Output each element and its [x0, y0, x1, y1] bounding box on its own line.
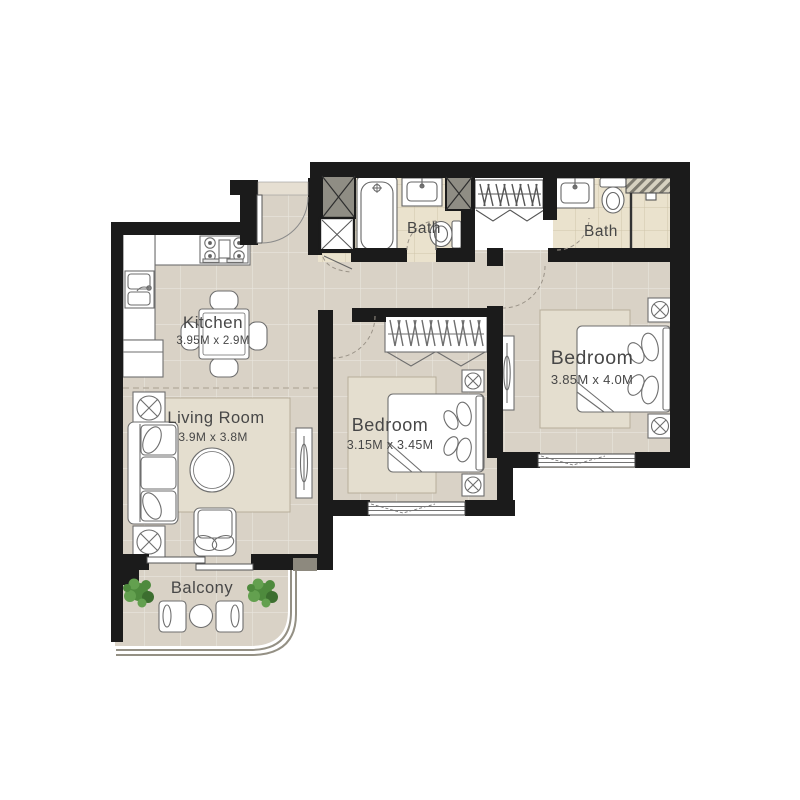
balcony-chair-icon [216, 601, 243, 632]
nightstand-icon [462, 370, 484, 392]
wall-bedroom-master-west-top [487, 248, 503, 266]
wall-bedroom-small-south-right [465, 500, 515, 516]
wall-bedroom-master-south-right [635, 452, 690, 468]
nightstand-icon [462, 474, 484, 496]
structural-block [293, 558, 317, 571]
armchair-icon [193, 508, 236, 556]
sofa-icon [128, 422, 178, 524]
wall-bedroom-master-west [487, 306, 503, 458]
bedroom-master-dimensions: 3.85M x 4.0M [551, 372, 633, 387]
wall-bedroom-master-south-left [497, 452, 540, 468]
shaft-icon [320, 218, 354, 253]
wall-bedroom-small-north-stub [352, 308, 386, 322]
fridge-icon [123, 340, 163, 377]
bedroom-master-label: Bedroom [551, 347, 634, 369]
bathtub-icon [357, 176, 397, 255]
bedroom-small-label: Bedroom [352, 415, 429, 435]
kitchen-label: Kitchen [183, 313, 243, 332]
wall-entry-west [240, 195, 258, 245]
window [538, 454, 635, 467]
bed-icon [577, 326, 671, 412]
wall-above-wardrobe [386, 308, 487, 317]
wall-living-east [318, 310, 333, 570]
column-icon [446, 177, 472, 210]
balcony-furniture [159, 601, 243, 632]
wall-bath1-south-a [351, 248, 407, 262]
nightstand-icon [648, 298, 672, 322]
balcony-label: Balcony [171, 579, 233, 597]
bedroom-small-furniture [385, 316, 487, 496]
tv-unit-icon [296, 428, 312, 498]
toilet-icon [600, 178, 626, 213]
wall-entry-left [230, 180, 258, 195]
side-table-lamp-icon [133, 526, 165, 558]
hall-closet-icon [475, 180, 544, 221]
column-icon [322, 176, 355, 218]
living-room-label: Living Room [167, 409, 264, 427]
washbasin-icon [402, 178, 442, 206]
kitchen-sink-icon [125, 271, 154, 308]
wall-top [310, 162, 690, 178]
living-room-dimensions: 3.9M x 3.8M [178, 430, 247, 444]
wall-bedroom-small-south-left [318, 500, 370, 516]
balcony-chair-icon [159, 601, 186, 632]
wall-bath2-south [548, 248, 690, 262]
washbasin-icon [556, 178, 594, 208]
side-table-lamp-icon [133, 392, 165, 424]
wall-closet-bath2-divider [543, 170, 557, 220]
nightstand-icon [648, 414, 672, 438]
floor-plan-canvas: Kitchen 3.95M x 2.9M Living Room 3.9M x … [0, 0, 800, 800]
kitchen-dimensions: 3.95M x 2.9M [176, 335, 249, 347]
balcony-table-icon [190, 605, 213, 628]
floor-plan-drawing: Kitchen 3.95M x 2.9M Living Room 3.9M x … [0, 0, 800, 800]
wall-kitchen-north [113, 222, 250, 235]
coffee-table-icon [190, 448, 234, 492]
bath-1-label: Bath [407, 220, 441, 237]
bedroom-small-dimensions: 3.15M x 3.45M [347, 438, 434, 452]
bath-2-label: Bath [584, 223, 618, 240]
window [368, 502, 465, 515]
wall-right [670, 162, 690, 468]
